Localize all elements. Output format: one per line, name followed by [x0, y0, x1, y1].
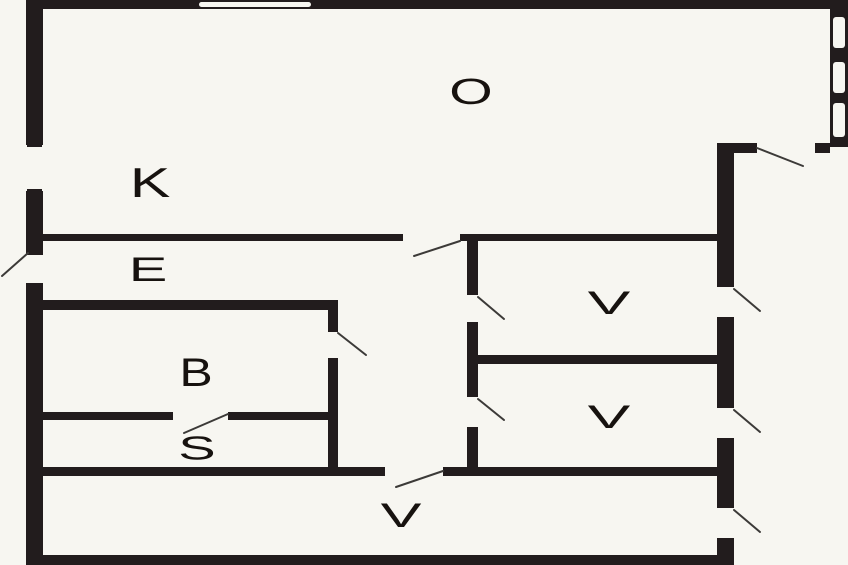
door-swing-entrance: [2, 253, 28, 276]
door-swing-v-bottom: [396, 471, 443, 487]
room-label-v-middle: V: [588, 401, 631, 433]
floor-plan: O K E B S V V V: [0, 0, 848, 565]
room-label-v-upper: V: [588, 287, 631, 319]
room-label-o: O: [449, 74, 492, 110]
window-swing-v-middle: [734, 410, 760, 432]
room-label-k: K: [130, 162, 171, 204]
door-swing-k-hall: [414, 241, 460, 256]
window-swing-v-bottom: [734, 510, 760, 532]
room-label-b: B: [179, 353, 212, 393]
room-label-v-bottom: V: [381, 499, 422, 533]
room-label-s: S: [178, 432, 215, 465]
door-swings-overlay: [0, 0, 848, 565]
door-swing-v-middle: [478, 399, 504, 420]
window-swing-v-upper: [734, 289, 760, 311]
door-swing-balcony: [757, 148, 803, 166]
room-label-e: E: [129, 253, 168, 287]
door-swing-b: [338, 333, 366, 355]
door-swing-v-upper: [478, 297, 504, 319]
